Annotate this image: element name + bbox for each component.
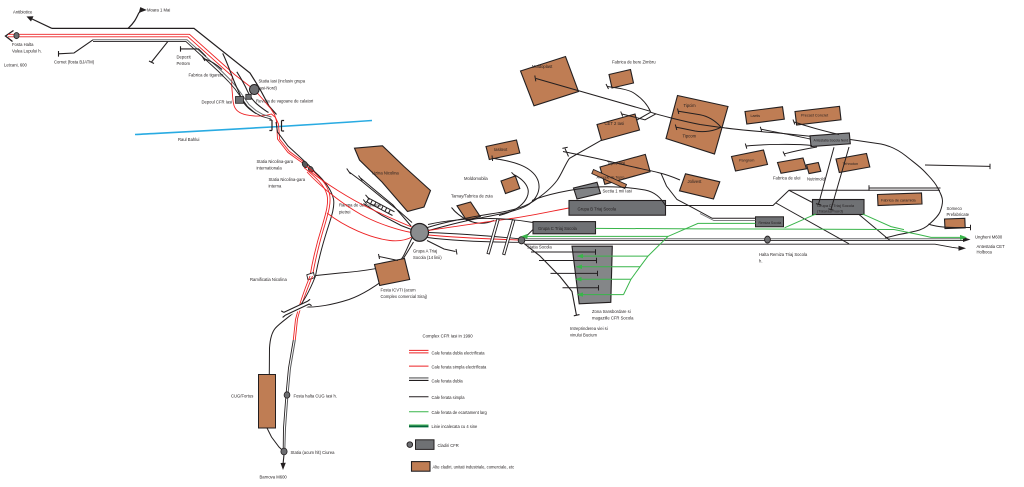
svg-text:Cale ferata de ecartament larg: Cale ferata de ecartament larg: [432, 410, 488, 415]
svg-text:Sectia 1 mii Iasi: Sectia 1 mii Iasi: [603, 189, 632, 194]
svg-text:Petrom: Petrom: [177, 61, 191, 66]
svg-text:Tipcim: Tipcim: [684, 103, 697, 108]
svg-text:internationala: internationala: [257, 166, 283, 171]
svg-text:Intreprinderea viei si: Intreprinderea viei si: [570, 326, 608, 331]
svg-text:CET 2 Iasi: CET 2 Iasi: [605, 121, 625, 126]
svg-text:Someco: Someco: [947, 206, 963, 211]
svg-text:Remiza Socola: Remiza Socola: [759, 221, 782, 225]
svg-text:Holboca: Holboca: [977, 250, 993, 255]
svg-text:Linie incalecata cu 4 sine: Linie incalecata cu 4 sine: [432, 424, 478, 429]
svg-text:Laetis: Laetis: [751, 114, 761, 118]
svg-text:Antestatia CET: Antestatia CET: [977, 244, 1006, 249]
svg-text:Precast Concret: Precast Concret: [801, 114, 829, 118]
svg-text:Statia Nicolina-gara: Statia Nicolina-gara: [257, 159, 294, 164]
svg-text:Grupa A Triaj: Grupa A Triaj: [413, 249, 437, 254]
svg-text:Cale ferata dubla: Cale ferata dubla: [432, 379, 464, 384]
svg-text:Cornet (fosta BJATM): Cornet (fosta BJATM): [54, 60, 95, 65]
svg-text:Revizia de vagoane de calatori: Revizia de vagoane de calatori: [256, 99, 313, 104]
svg-text:Grupa C Triaj Socola: Grupa C Triaj Socola: [538, 226, 578, 231]
svg-text:Moldomobila: Moldomobila: [464, 176, 488, 181]
svg-text:Fabrica de tigarete: Fabrica de tigarete: [189, 73, 225, 78]
svg-text:Iasi-Nord): Iasi-Nord): [259, 86, 278, 91]
svg-text:h.: h.: [759, 259, 763, 264]
svg-text:Fabrica de bere Zimbru: Fabrica de bere Zimbru: [612, 60, 656, 65]
svg-text:Cale ferata simpla: Cale ferata simpla: [432, 395, 466, 400]
svg-text:Complex comercial Siraj): Complex comercial Siraj): [381, 294, 428, 299]
svg-text:Nutrimold: Nutrimold: [807, 177, 826, 182]
svg-text:pietrei: pietrei: [339, 210, 350, 215]
svg-text:Fosta halta CUG Iasi h.: Fosta halta CUG Iasi h.: [294, 394, 338, 399]
svg-text:Valea Lupului h.: Valea Lupului h.: [12, 49, 42, 54]
svg-text:Anexele de Tepro: Anexele de Tepro: [597, 176, 625, 180]
svg-text:Iasitext: Iasitext: [494, 147, 508, 152]
svg-text:interna: interna: [269, 184, 282, 189]
svg-text:Fosta Halta: Fosta Halta: [12, 42, 34, 47]
svg-text:Zona transbordare si: Zona transbordare si: [592, 309, 631, 314]
svg-text:Prefabricate: Prefabricate: [947, 212, 970, 217]
svg-text:Ramificatia Nicolina: Ramificatia Nicolina: [250, 277, 287, 282]
svg-text:Fabrica de ulei: Fabrica de ulei: [773, 176, 801, 181]
svg-text:Socola (14 linii): Socola (14 linii): [413, 255, 442, 260]
svg-text:Statia (acum hlt) Ciurea: Statia (acum hlt) Ciurea: [291, 450, 336, 455]
svg-text:Depozit: Depozit: [177, 55, 192, 60]
svg-text:Depoul CFR Iasi: Depoul CFR Iasi: [202, 100, 233, 105]
svg-text:Tamay/Tabrica de zuia: Tamay/Tabrica de zuia: [451, 194, 493, 199]
svg-text:Cale ferata dubla electrificat: Cale ferata dubla electrificata: [432, 351, 486, 356]
svg-text:Jolivest: Jolivest: [688, 179, 703, 184]
svg-text:Fabrica de caramida: Fabrica de caramida: [881, 199, 916, 203]
svg-text:Halta Remiza Triaj Socola: Halta Remiza Triaj Socola: [759, 252, 808, 257]
svg-text:Antestatia Socola Nord: Antestatia Socola Nord: [814, 139, 849, 143]
svg-text:magaziile CFR Socola: magaziile CFR Socola: [592, 315, 634, 320]
svg-text:Barnova M600: Barnova M600: [260, 475, 288, 480]
svg-text:Ungheni M600: Ungheni M600: [975, 235, 1003, 240]
svg-text:Grupa B Triaj Socola: Grupa B Triaj Socola: [578, 207, 617, 212]
svg-text:Antibiotice: Antibiotice: [13, 10, 33, 15]
svg-text:Pangrom: Pangrom: [739, 159, 754, 163]
svg-text:Uzina Nicolina: Uzina Nicolina: [372, 171, 399, 176]
svg-text:Complex CFR Iasi in 1990: Complex CFR Iasi in 1990: [423, 334, 474, 339]
svg-text:CUG/Fortus: CUG/Fortus: [231, 394, 253, 399]
svg-text:Statia Iasi (inclusiv grupa: Statia Iasi (inclusiv grupa: [259, 79, 306, 84]
svg-text:Raul Bahlui: Raul Bahlui: [178, 137, 199, 142]
svg-text:Fosta ICVTI (acum: Fosta ICVTI (acum: [381, 288, 417, 293]
svg-text:Statia Nicolina-gara: Statia Nicolina-gara: [269, 177, 306, 182]
svg-text:Tipcom: Tipcom: [683, 134, 697, 139]
svg-text:Alte cladiri, unitati industri: Alte cladiri, unitati industriale, comer…: [433, 465, 515, 470]
svg-text:Moldoplast: Moldoplast: [532, 64, 553, 69]
svg-text:Grupa D Triaj Socola: Grupa D Triaj Socola: [817, 203, 855, 208]
svg-text:vinului Bucium: vinului Bucium: [570, 333, 598, 338]
svg-text:Moara 1 Mai: Moara 1 Mai: [147, 8, 170, 13]
svg-text:Letcani, 600: Letcani, 600: [4, 63, 27, 68]
svg-text:Cale ferata simpla electrifica: Cale ferata simpla electrificata: [432, 364, 488, 369]
svg-text:Cladiri CFR: Cladiri CFR: [438, 443, 459, 448]
